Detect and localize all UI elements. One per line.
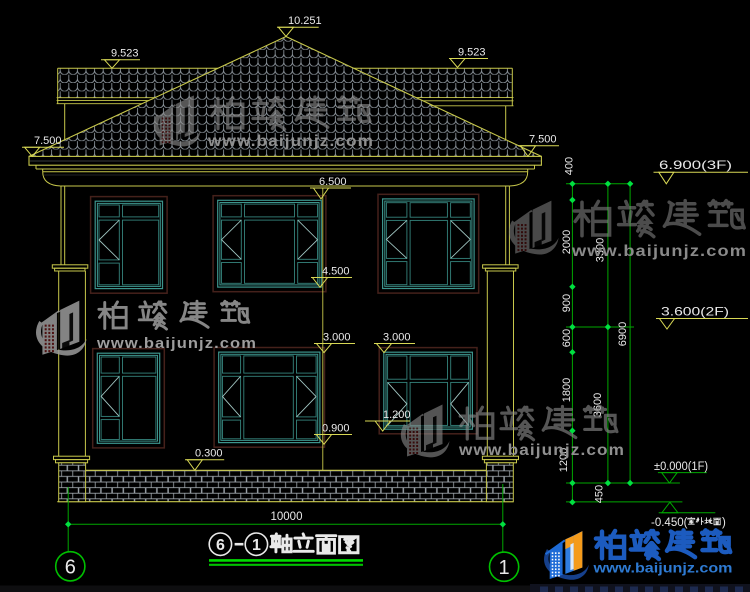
svg-text:10000: 10000 [271,511,303,523]
svg-text:1: 1 [499,557,510,579]
svg-text:4.500: 4.500 [322,265,350,277]
svg-text:7.500: 7.500 [529,134,557,146]
svg-text:900: 900 [561,294,573,312]
svg-text:3.000: 3.000 [323,331,351,343]
svg-text:0.900: 0.900 [322,422,350,434]
svg-text:0.300: 0.300 [195,448,223,460]
svg-text:10.251: 10.251 [288,15,322,27]
svg-text:400: 400 [564,157,576,175]
svg-text:www.baijunjz.com: www.baijunjz.com [571,243,747,260]
svg-text:www.baijunjz.com: www.baijunjz.com [96,335,257,352]
svg-text:6.500: 6.500 [319,176,347,188]
svg-text:6: 6 [216,537,225,554]
svg-text:9.523: 9.523 [458,46,486,58]
svg-text:1800: 1800 [561,378,573,402]
svg-text:www.baijunjz.com: www.baijunjz.com [458,442,625,459]
svg-text:-0.450(: -0.450( [651,517,688,529]
svg-text:9.523: 9.523 [111,48,139,60]
svg-text:): ) [722,517,726,529]
svg-text:3.600(2F): 3.600(2F) [661,304,729,318]
svg-text:3.000: 3.000 [383,331,411,343]
svg-text:6900: 6900 [617,322,629,346]
svg-text:1: 1 [252,537,261,554]
svg-text:www.baijunjz.com: www.baijunjz.com [207,133,374,150]
svg-text:1.200: 1.200 [383,409,411,421]
svg-text:6.900(3F): 6.900(3F) [659,158,732,172]
svg-text:450: 450 [594,485,606,503]
svg-text:7.500: 7.500 [34,135,62,147]
svg-text:6: 6 [65,557,76,579]
svg-text:www.baijunjz.com: www.baijunjz.com [592,560,732,576]
svg-text:±0.000(1F): ±0.000(1F) [654,461,708,473]
svg-text:600: 600 [561,329,573,347]
